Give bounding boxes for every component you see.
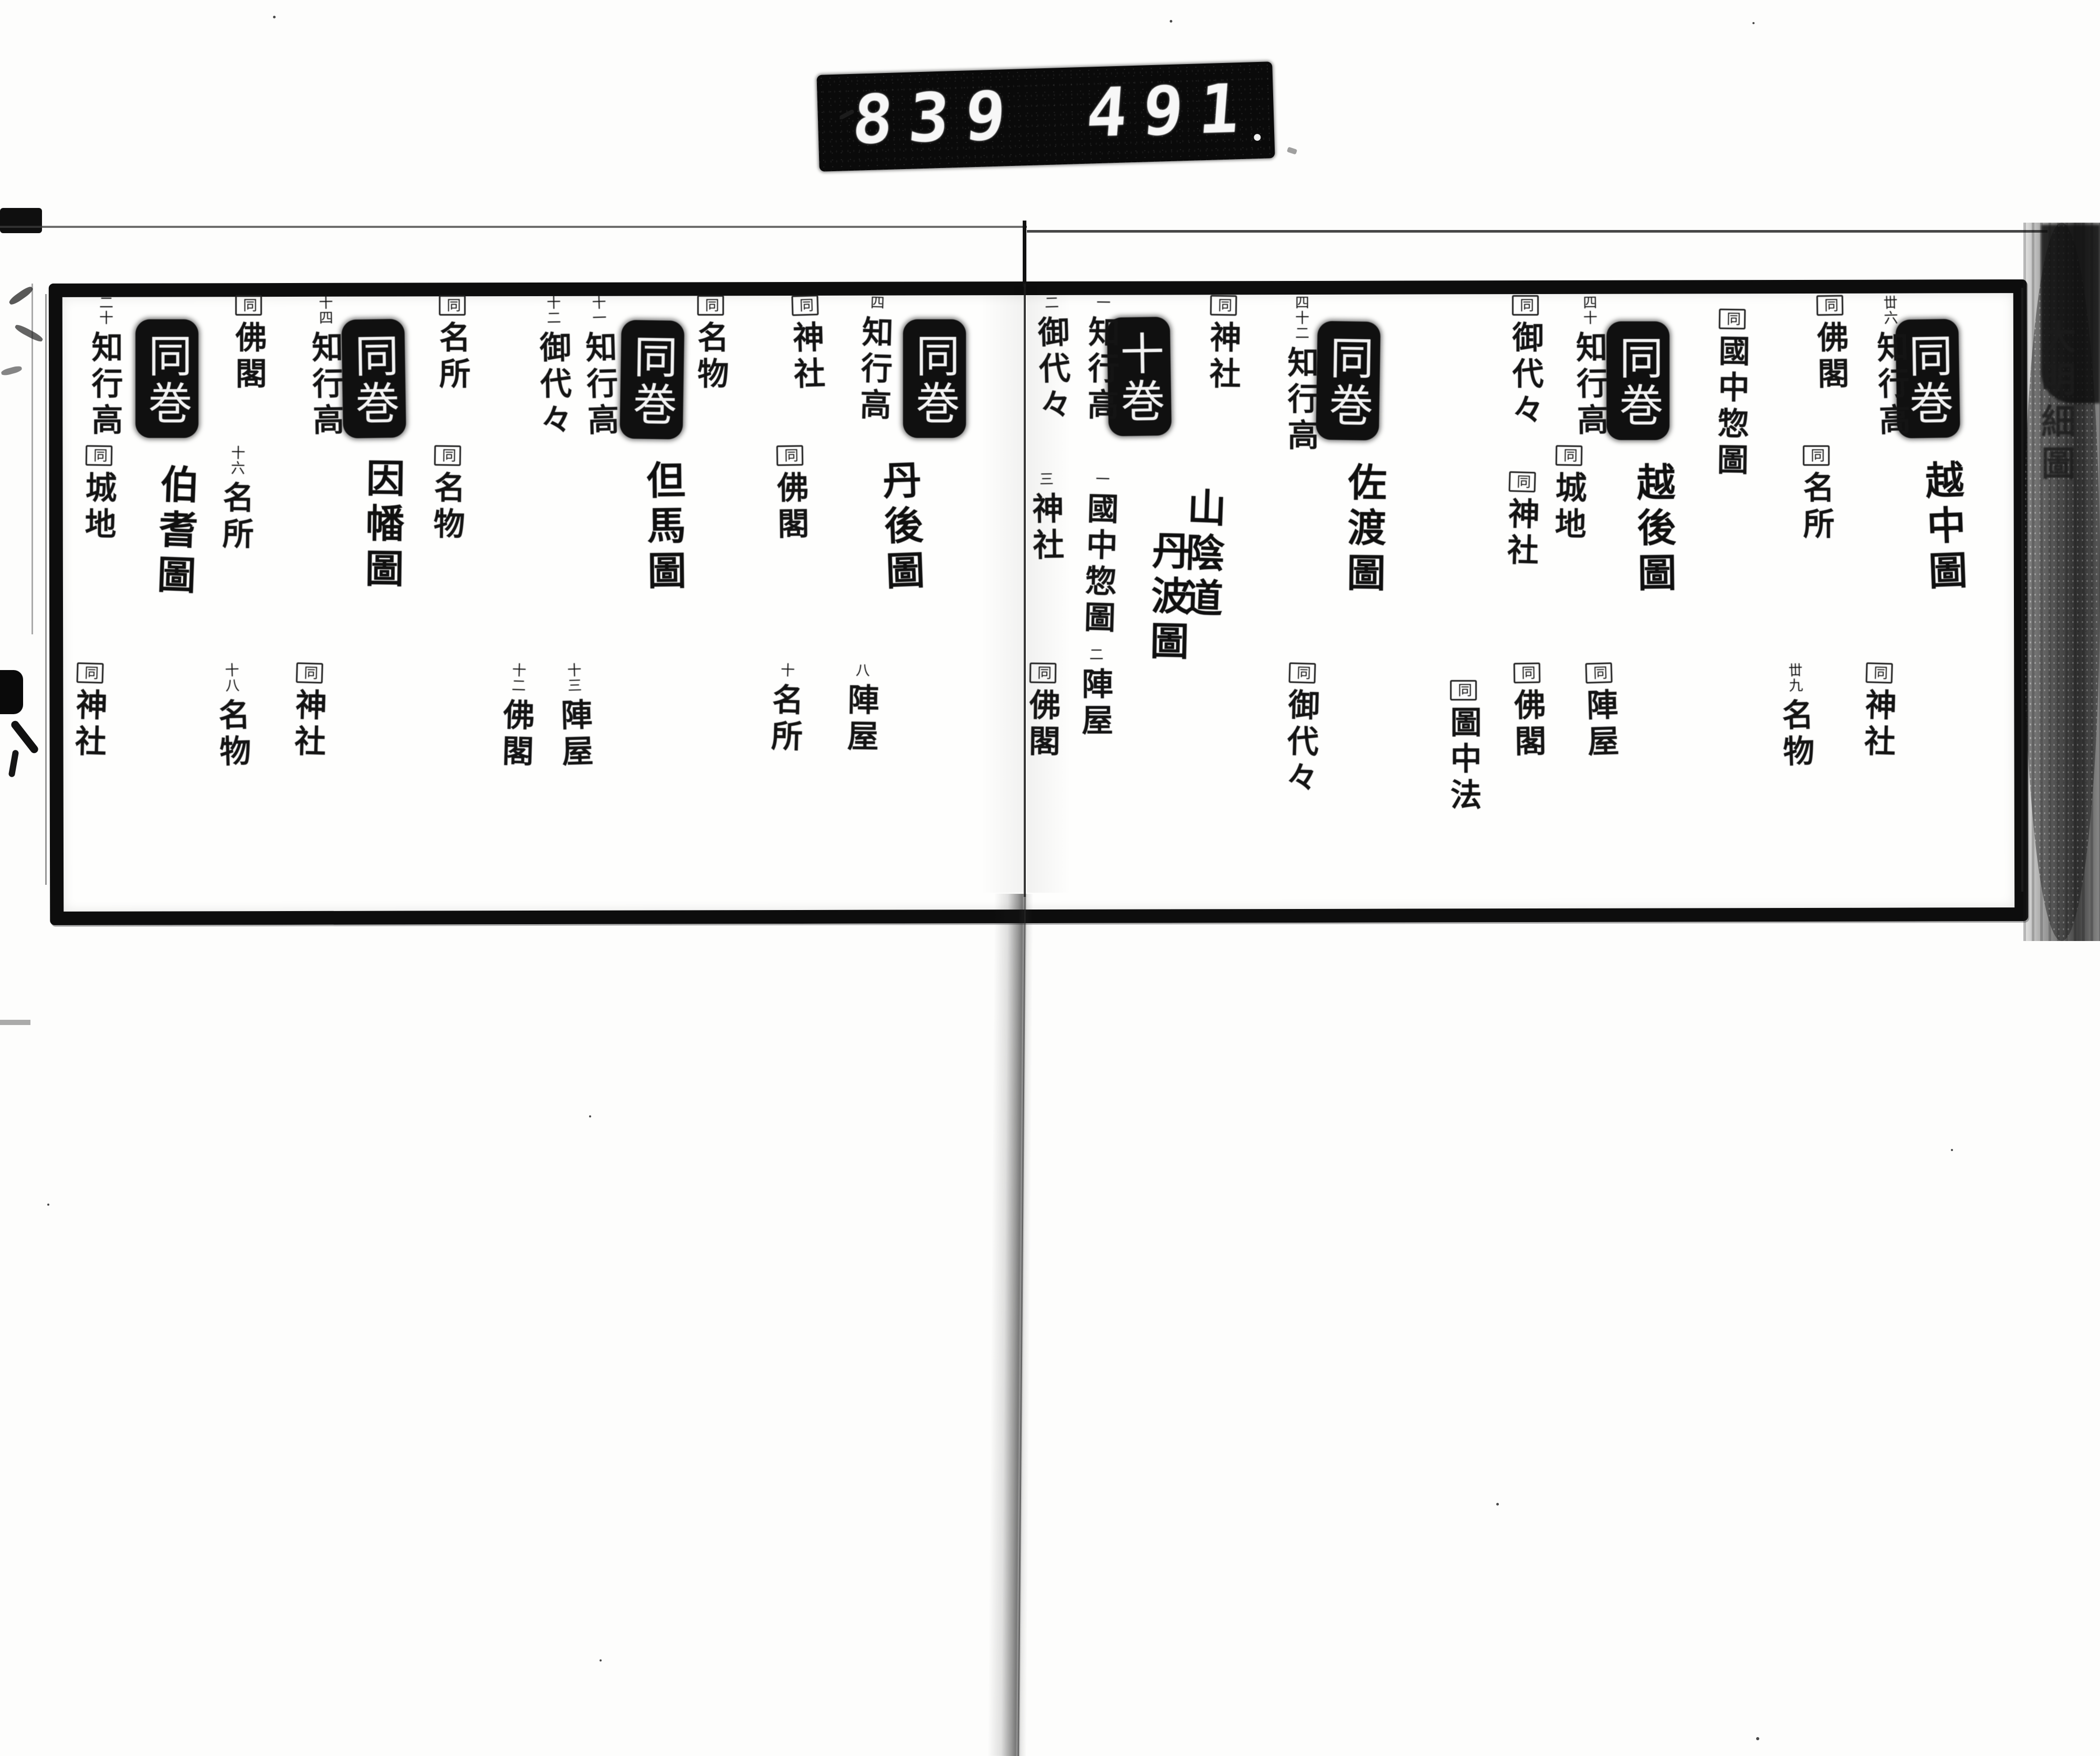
index-entry-column: 同名物 bbox=[424, 445, 471, 543]
province-map-title: 伯耆圖 bbox=[144, 463, 205, 601]
volume-label: 同巻 bbox=[135, 319, 198, 438]
margin-ink-mark bbox=[1, 365, 23, 377]
entry-text: 佛閣 bbox=[771, 471, 809, 544]
folio-number: 一 bbox=[1091, 295, 1112, 311]
index-entry-column: 同陣屋 bbox=[1576, 662, 1624, 761]
entry-text: 神社 bbox=[1026, 492, 1064, 565]
entry-text: 名所 bbox=[1798, 471, 1834, 543]
ditto-mark: 同 bbox=[1719, 309, 1746, 330]
volume-label: 同巻 bbox=[619, 320, 685, 440]
folio-number: 三 bbox=[1035, 472, 1055, 487]
entry-text: 知行高 bbox=[854, 315, 894, 425]
index-entry-column: 二陣屋 bbox=[1072, 647, 1118, 740]
fore-edge-title: 大明細圖 bbox=[2031, 319, 2081, 487]
index-entry-column: 一知行高 bbox=[1077, 295, 1125, 424]
margin-ink-blob bbox=[0, 670, 23, 714]
index-entry-column: 二十知行高 bbox=[82, 295, 128, 440]
volume-label: 同巻 bbox=[903, 319, 966, 438]
index-entry-column: 同神社 bbox=[1854, 662, 1902, 761]
entry-text: 神社 bbox=[1858, 688, 1897, 761]
entry-text: 陣屋 bbox=[842, 683, 879, 756]
entry-text: 名物 bbox=[1776, 698, 1815, 771]
index-entry-column: 同名所 bbox=[1793, 445, 1839, 543]
ditto-mark: 同 bbox=[235, 295, 262, 316]
index-entry-column: 同國中惣圖 bbox=[1707, 308, 1756, 479]
ink-speck bbox=[1496, 1503, 1499, 1506]
ink-speck bbox=[1170, 20, 1172, 23]
entry-text: 知行高 bbox=[1282, 346, 1319, 455]
index-entry-column: 十名所 bbox=[761, 662, 810, 756]
index-entry-column: 十二佛閣 bbox=[492, 662, 541, 771]
folio-number: 二 bbox=[1085, 647, 1105, 662]
index-entry-column: 一國中惣圖 bbox=[1074, 471, 1125, 637]
ditto-mark: 同 bbox=[1512, 295, 1539, 316]
index-entry-column: 同圖中法 bbox=[1441, 680, 1486, 814]
index-entry-column: 十二御代々 bbox=[529, 295, 577, 440]
ditto-mark: 同 bbox=[1816, 295, 1844, 316]
index-entry-column: 十一知行高 bbox=[574, 295, 624, 440]
volume-label: 同巻 bbox=[1606, 321, 1669, 440]
index-entry-column: 同御代々 bbox=[1276, 662, 1325, 798]
margin-ink-mark bbox=[8, 285, 35, 306]
volume-label: 同巻 bbox=[341, 319, 406, 438]
folio-number: 二十 bbox=[94, 295, 115, 326]
entry-text: 國中惣圖 bbox=[1711, 335, 1750, 480]
ink-speck bbox=[47, 1204, 49, 1206]
ditto-mark: 同 bbox=[776, 445, 804, 466]
scanned-manuscript-page: 839 491 大明細圖 同巻越中圖丗六知行高同佛閣同名所同國中惣圖同神社丗九名… bbox=[0, 0, 2100, 1756]
ink-speck bbox=[1752, 22, 1755, 24]
center-fold-line-top bbox=[1023, 221, 1026, 287]
province-map-title: 丹波圖 bbox=[1138, 530, 1196, 666]
entry-text: 佛閣 bbox=[1508, 688, 1546, 761]
entry-text: 知行高 bbox=[1871, 330, 1911, 440]
index-entry-column: 四知行高 bbox=[850, 295, 899, 425]
index-entry-column: 同神社 bbox=[782, 295, 830, 394]
index-entry-column: 同神社 bbox=[1497, 471, 1545, 570]
index-entry-column: 四十二知行高 bbox=[1278, 295, 1324, 455]
entry-text: 知行高 bbox=[1081, 316, 1120, 425]
index-entry-column: 同神社 bbox=[65, 662, 113, 761]
index-entry-column: 十四知行高 bbox=[301, 295, 349, 440]
ditto-mark: 同 bbox=[439, 295, 466, 316]
folio-number: 十三 bbox=[562, 662, 584, 693]
ditto-mark: 同 bbox=[1030, 663, 1057, 684]
index-entry-column: 同佛閣 bbox=[226, 295, 271, 393]
folio-number: 十 bbox=[776, 662, 797, 678]
index-entry-column: 同御代々 bbox=[1503, 295, 1548, 430]
index-entry-column: 丗六知行高 bbox=[1866, 295, 1916, 440]
entry-text: 神社 bbox=[69, 688, 108, 761]
folio-number: 十二 bbox=[542, 295, 563, 326]
margin-gray-dash bbox=[0, 1020, 30, 1025]
entry-text: 陣屋 bbox=[555, 698, 594, 771]
ditto-mark: 同 bbox=[1450, 680, 1477, 701]
index-entry-column: 三神社 bbox=[1022, 471, 1069, 565]
ditto-mark: 同 bbox=[77, 662, 104, 683]
index-entry-column: 同佛閣 bbox=[1019, 662, 1066, 761]
center-fold-crease-below bbox=[988, 894, 1033, 1756]
folio-number: 四十 bbox=[1578, 295, 1599, 326]
ink-speck bbox=[1951, 1149, 1953, 1151]
page-top-edge-right bbox=[1027, 230, 2047, 233]
page-edge-dash bbox=[0, 208, 42, 233]
index-entry-column: 同名所 bbox=[429, 295, 475, 393]
volume-label: 同巻 bbox=[1316, 321, 1381, 441]
margin-ink-mark bbox=[14, 323, 44, 343]
index-entry-column: 十三陣屋 bbox=[550, 662, 598, 771]
entry-text: 名所 bbox=[434, 321, 470, 393]
index-entry-column: 同神社 bbox=[1200, 295, 1247, 393]
index-entry-column: 同名物 bbox=[688, 295, 733, 393]
folio-number: 四 bbox=[866, 295, 887, 311]
ink-speck bbox=[600, 1659, 602, 1661]
ditto-mark: 同 bbox=[434, 445, 461, 466]
entry-text: 神社 bbox=[787, 320, 826, 394]
folio-number: 丗六 bbox=[1878, 295, 1900, 326]
entry-text: 城地 bbox=[1549, 471, 1587, 544]
index-entry-column: 同佛閣 bbox=[767, 445, 814, 543]
entry-text: 佛閣 bbox=[496, 698, 535, 771]
margin-brush-stroke bbox=[9, 719, 39, 755]
province-map-title: 但馬圖 bbox=[634, 459, 692, 595]
margin-brush-stroke bbox=[8, 749, 19, 777]
center-fold-line bbox=[1024, 284, 1026, 897]
entry-text: 神社 bbox=[1501, 497, 1540, 570]
entry-text: 國中惣圖 bbox=[1078, 492, 1119, 637]
folio-number: 十八 bbox=[220, 662, 241, 693]
ditto-mark: 同 bbox=[1585, 662, 1612, 683]
folio-number: 一 bbox=[1091, 472, 1112, 487]
ditto-mark: 同 bbox=[791, 295, 818, 316]
counter-digits-right: 491 bbox=[1084, 69, 1258, 153]
ditto-mark: 同 bbox=[1514, 663, 1541, 684]
folio-number: 四十二 bbox=[1290, 295, 1311, 341]
entry-text: 佛閣 bbox=[230, 321, 267, 393]
gutter-shadow-left bbox=[981, 286, 1025, 893]
index-entry-column: 十六名所 bbox=[213, 445, 260, 553]
province-map-title: 因幡圖 bbox=[353, 457, 411, 593]
entry-text: 佛閣 bbox=[1811, 321, 1849, 394]
entry-text: 御代々 bbox=[1507, 321, 1543, 430]
entry-text: 城地 bbox=[79, 471, 117, 544]
entry-text: 知行高 bbox=[580, 330, 619, 440]
folio-number: 二 bbox=[1040, 295, 1061, 311]
index-entry-column: 二御代々 bbox=[1027, 295, 1077, 425]
entry-text: 佛閣 bbox=[1023, 688, 1061, 761]
index-entry-column: 同城地 bbox=[75, 445, 122, 543]
entry-text: 知行高 bbox=[306, 331, 344, 440]
ink-tick bbox=[1287, 147, 1297, 154]
folio-number: 十一 bbox=[587, 295, 608, 326]
index-entry-column: 同佛閣 bbox=[1807, 295, 1854, 393]
index-entry-column: 八陣屋 bbox=[837, 662, 884, 756]
province-map-title: 越後圖 bbox=[1624, 462, 1682, 598]
index-entry-column: 同佛閣 bbox=[1504, 662, 1551, 761]
ditto-mark: 同 bbox=[86, 445, 113, 466]
ditto-mark: 同 bbox=[697, 295, 724, 316]
entry-text: 御代々 bbox=[534, 331, 572, 440]
ditto-mark: 同 bbox=[1866, 662, 1893, 683]
province-map-title: 丹後圖 bbox=[870, 459, 931, 597]
entry-text: 圖中法 bbox=[1445, 706, 1482, 814]
ink-speck bbox=[1756, 1737, 1759, 1740]
entry-text: 御代々 bbox=[1280, 688, 1320, 798]
ditto-mark: 同 bbox=[1288, 662, 1316, 683]
ditto-mark: 同 bbox=[1210, 295, 1237, 316]
microfilm-frame-counter: 839 491 bbox=[816, 61, 1275, 172]
folio-number: 十二 bbox=[507, 662, 528, 693]
counter-digits-left: 839 bbox=[849, 76, 1024, 160]
entry-text: 名物 bbox=[213, 698, 251, 771]
entry-text: 陣屋 bbox=[1076, 667, 1113, 740]
ditto-mark: 同 bbox=[296, 662, 323, 683]
index-entry-column: 同神社 bbox=[284, 662, 332, 761]
index-entry-column: 十八名物 bbox=[207, 662, 256, 771]
folio-number: 十六 bbox=[226, 445, 247, 476]
province-map-title: 越中圖 bbox=[1913, 459, 1973, 597]
frame-left-doubling-line bbox=[45, 294, 47, 885]
entry-text: 名物 bbox=[428, 471, 466, 544]
entry-text: 知行高 bbox=[1570, 331, 1609, 440]
entry-text: 神社 bbox=[288, 688, 327, 761]
folio-number: 丗九 bbox=[1783, 662, 1805, 693]
entry-text: 名所 bbox=[217, 481, 255, 554]
entry-text: 名物 bbox=[692, 321, 729, 393]
entry-text: 神社 bbox=[1204, 321, 1242, 394]
ink-speck bbox=[589, 1115, 591, 1117]
ink-speck bbox=[273, 16, 276, 18]
entry-text: 御代々 bbox=[1032, 315, 1072, 425]
ditto-mark: 同 bbox=[1556, 445, 1583, 466]
ditto-mark: 同 bbox=[1509, 471, 1536, 492]
entry-text: 陣屋 bbox=[1581, 688, 1620, 761]
folio-number: 八 bbox=[851, 663, 871, 678]
index-entry-column: 丗九名物 bbox=[1771, 662, 1820, 771]
entry-text: 名所 bbox=[765, 683, 804, 756]
province-map-title: 佐渡圖 bbox=[1335, 462, 1392, 598]
folio-number: 十四 bbox=[314, 295, 335, 326]
entry-text: 知行高 bbox=[86, 331, 123, 440]
index-entry-column: 四十知行高 bbox=[1566, 295, 1613, 440]
ditto-mark: 同 bbox=[1803, 445, 1830, 466]
index-entry-column: 同城地 bbox=[1545, 445, 1592, 543]
page-top-edge-left bbox=[0, 226, 1027, 228]
